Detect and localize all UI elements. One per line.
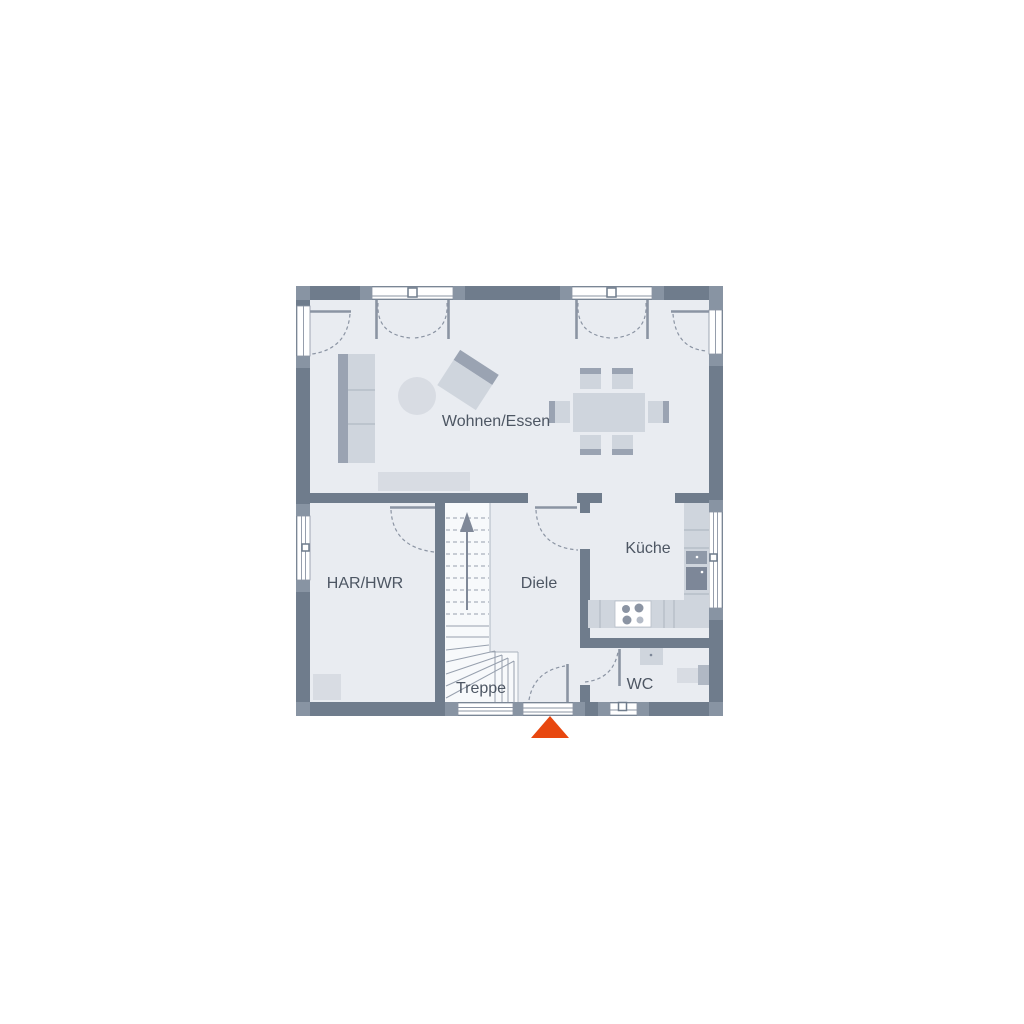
room-label-kitchen: Küche [625,540,670,557]
door-handle-icon [607,288,616,297]
washing-machine [313,674,341,700]
sink [640,648,663,665]
room-label-living-dining: Wohnen/Essen [442,413,550,430]
sofa [338,354,375,463]
cooktop [615,601,651,627]
wall-living-lower [310,493,528,503]
dining-table [573,393,645,432]
floor-plan-drawing: Wohnen/Essen HAR/HWR Diele Küche Treppe … [0,0,1024,1024]
wall-stair-shaft [435,493,445,702]
wall-wc-stub [580,685,590,702]
wall-kitchen-stub-foot [580,503,590,513]
window-wc [610,703,637,716]
wall-kitchen-wc [590,638,709,648]
kitchen-counter-right [684,503,709,628]
floor-plan-page: Wohnen/Essen HAR/HWR Diele Küche Treppe … [0,0,1024,1024]
room-label-stairs: Treppe [456,680,506,697]
window-kitchen [709,512,722,608]
room-label-hallway: Diele [521,575,558,592]
dining-chair [648,401,669,423]
corner-pier [709,286,723,300]
dining-chair [612,435,633,455]
window-handle-icon [302,544,309,551]
dining-chair [612,368,633,389]
window-left [297,516,310,580]
room-label-wc: WC [627,676,654,693]
sideboard [378,472,470,491]
corner-pier [296,702,310,716]
window-handle-icon [710,554,717,561]
dining-chair [580,368,601,389]
coffee-table [398,377,436,415]
dining-chair [549,401,570,423]
door-handle-icon [408,288,417,297]
toilet [677,668,698,683]
toilet-tank [698,665,709,685]
wall-kitchen-right [675,493,709,503]
wall-kitchen-stub [577,493,602,503]
entrance-marker-icon [531,716,569,738]
corner-pier [296,286,310,300]
window-handle-icon [619,703,627,711]
room-label-utility: HAR/HWR [327,575,403,592]
corner-pier [709,702,723,716]
dining-chair [580,435,601,455]
wall-hall-kitchen [580,549,590,648]
fridge [686,567,707,590]
window-stairs [458,703,513,715]
